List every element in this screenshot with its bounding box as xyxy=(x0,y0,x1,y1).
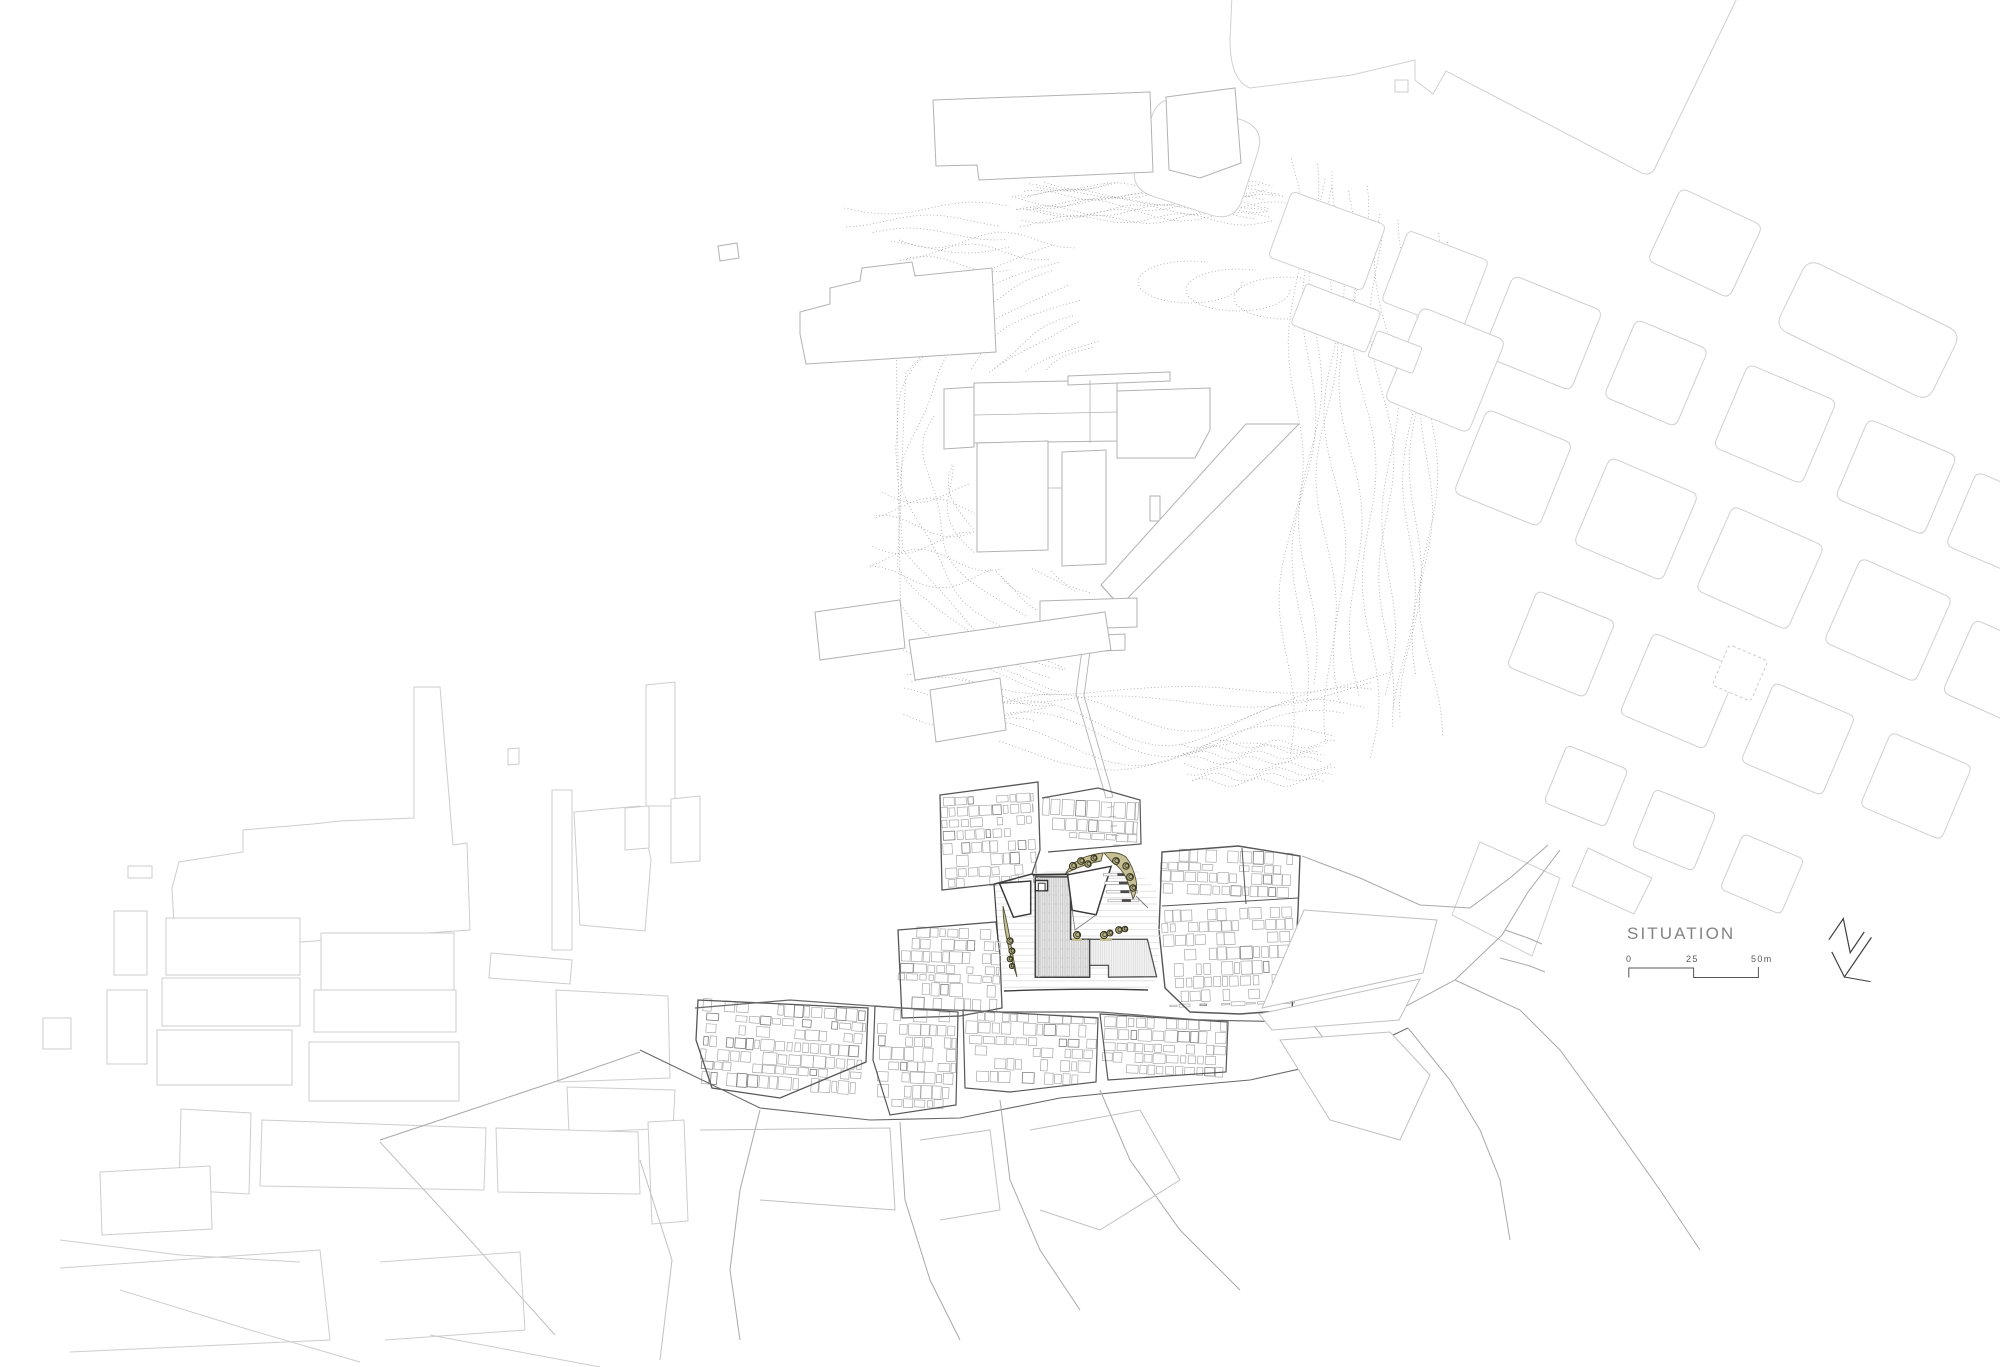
svg-text:0: 0 xyxy=(1626,954,1632,964)
svg-text:SITUATION: SITUATION xyxy=(1627,924,1735,943)
svg-text:50m: 50m xyxy=(1751,954,1773,964)
svg-text:25: 25 xyxy=(1686,954,1699,964)
